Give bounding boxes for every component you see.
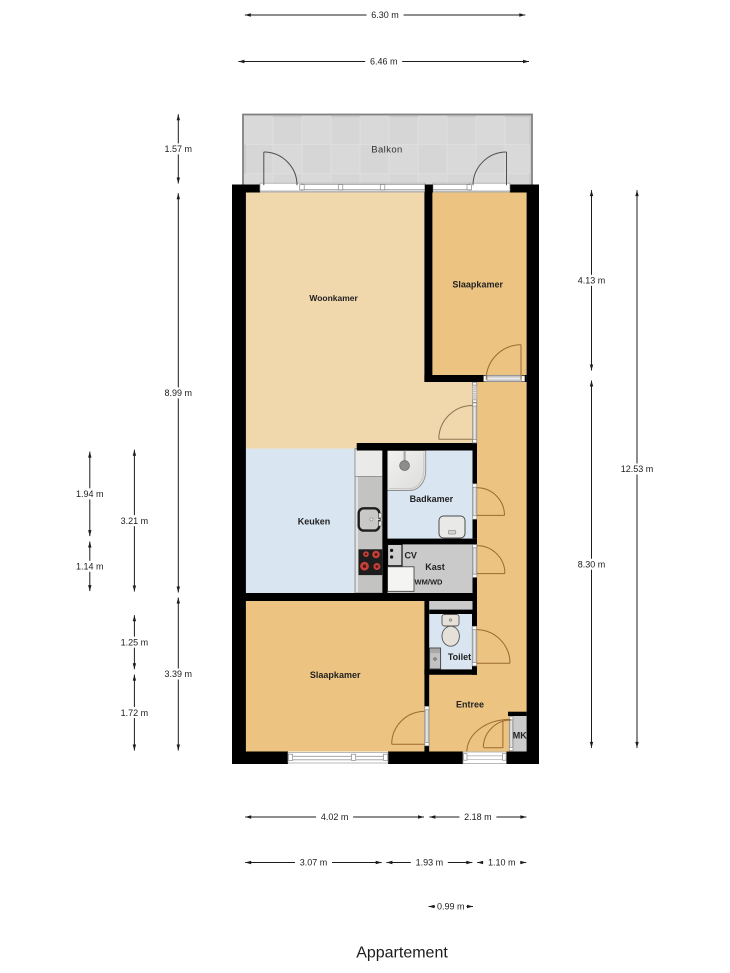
svg-text:Keuken: Keuken bbox=[298, 517, 331, 527]
svg-text:Slaapkamer: Slaapkamer bbox=[452, 280, 503, 290]
svg-text:1.10 m: 1.10 m bbox=[488, 858, 516, 868]
svg-text:Badkamer: Badkamer bbox=[410, 494, 454, 504]
svg-text:1.93 m: 1.93 m bbox=[416, 858, 444, 868]
svg-text:8.30 m: 8.30 m bbox=[578, 559, 606, 569]
svg-text:Slaapkamer: Slaapkamer bbox=[310, 670, 361, 680]
svg-text:1.25 m: 1.25 m bbox=[121, 637, 149, 647]
svg-text:Entree: Entree bbox=[456, 700, 484, 710]
svg-text:1.57 m: 1.57 m bbox=[165, 144, 193, 154]
svg-text:12.53 m: 12.53 m bbox=[621, 464, 654, 474]
svg-text:0.99 m: 0.99 m bbox=[437, 902, 465, 912]
svg-text:Woonkamer: Woonkamer bbox=[309, 293, 358, 303]
svg-text:4.02 m: 4.02 m bbox=[321, 812, 349, 822]
svg-text:8.99 m: 8.99 m bbox=[165, 388, 193, 398]
svg-text:3.39 m: 3.39 m bbox=[165, 669, 193, 679]
svg-text:6.30 m: 6.30 m bbox=[371, 10, 399, 20]
svg-text:Appartement: Appartement bbox=[356, 945, 448, 962]
svg-text:1.14 m: 1.14 m bbox=[76, 562, 104, 572]
svg-text:3.21 m: 3.21 m bbox=[121, 516, 149, 526]
svg-text:CV: CV bbox=[404, 550, 417, 560]
svg-text:2.18 m: 2.18 m bbox=[464, 812, 492, 822]
svg-text:1.94 m: 1.94 m bbox=[76, 489, 104, 499]
svg-text:4.13 m: 4.13 m bbox=[578, 276, 606, 286]
svg-text:3.07 m: 3.07 m bbox=[300, 858, 328, 868]
svg-text:1.72 m: 1.72 m bbox=[121, 708, 149, 718]
svg-text:WM/WD: WM/WD bbox=[415, 578, 443, 587]
svg-text:6.46 m: 6.46 m bbox=[370, 57, 398, 67]
svg-text:Kast: Kast bbox=[425, 562, 445, 572]
svg-text:MK: MK bbox=[513, 730, 527, 740]
svg-text:Balkon: Balkon bbox=[371, 145, 402, 156]
svg-text:Toilet: Toilet bbox=[448, 652, 471, 662]
